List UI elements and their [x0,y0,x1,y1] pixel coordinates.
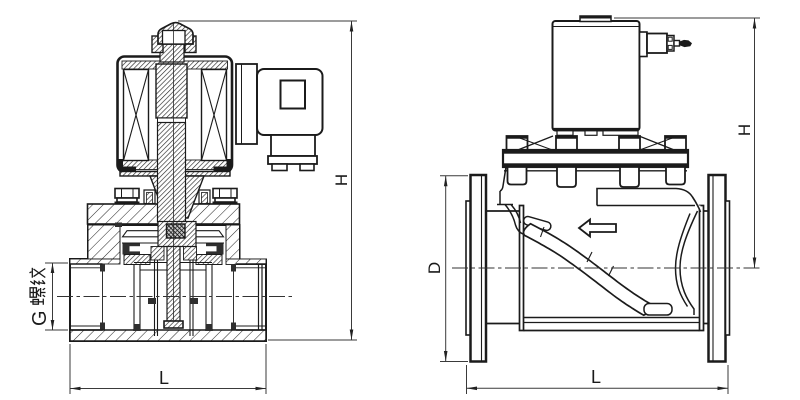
svg-text:H: H [332,174,351,186]
svg-text:H: H [735,124,754,136]
svg-text:D: D [425,262,444,274]
svg-text:L: L [159,368,169,388]
svg-text:G: G [29,310,51,326]
svg-text:L: L [591,367,601,387]
